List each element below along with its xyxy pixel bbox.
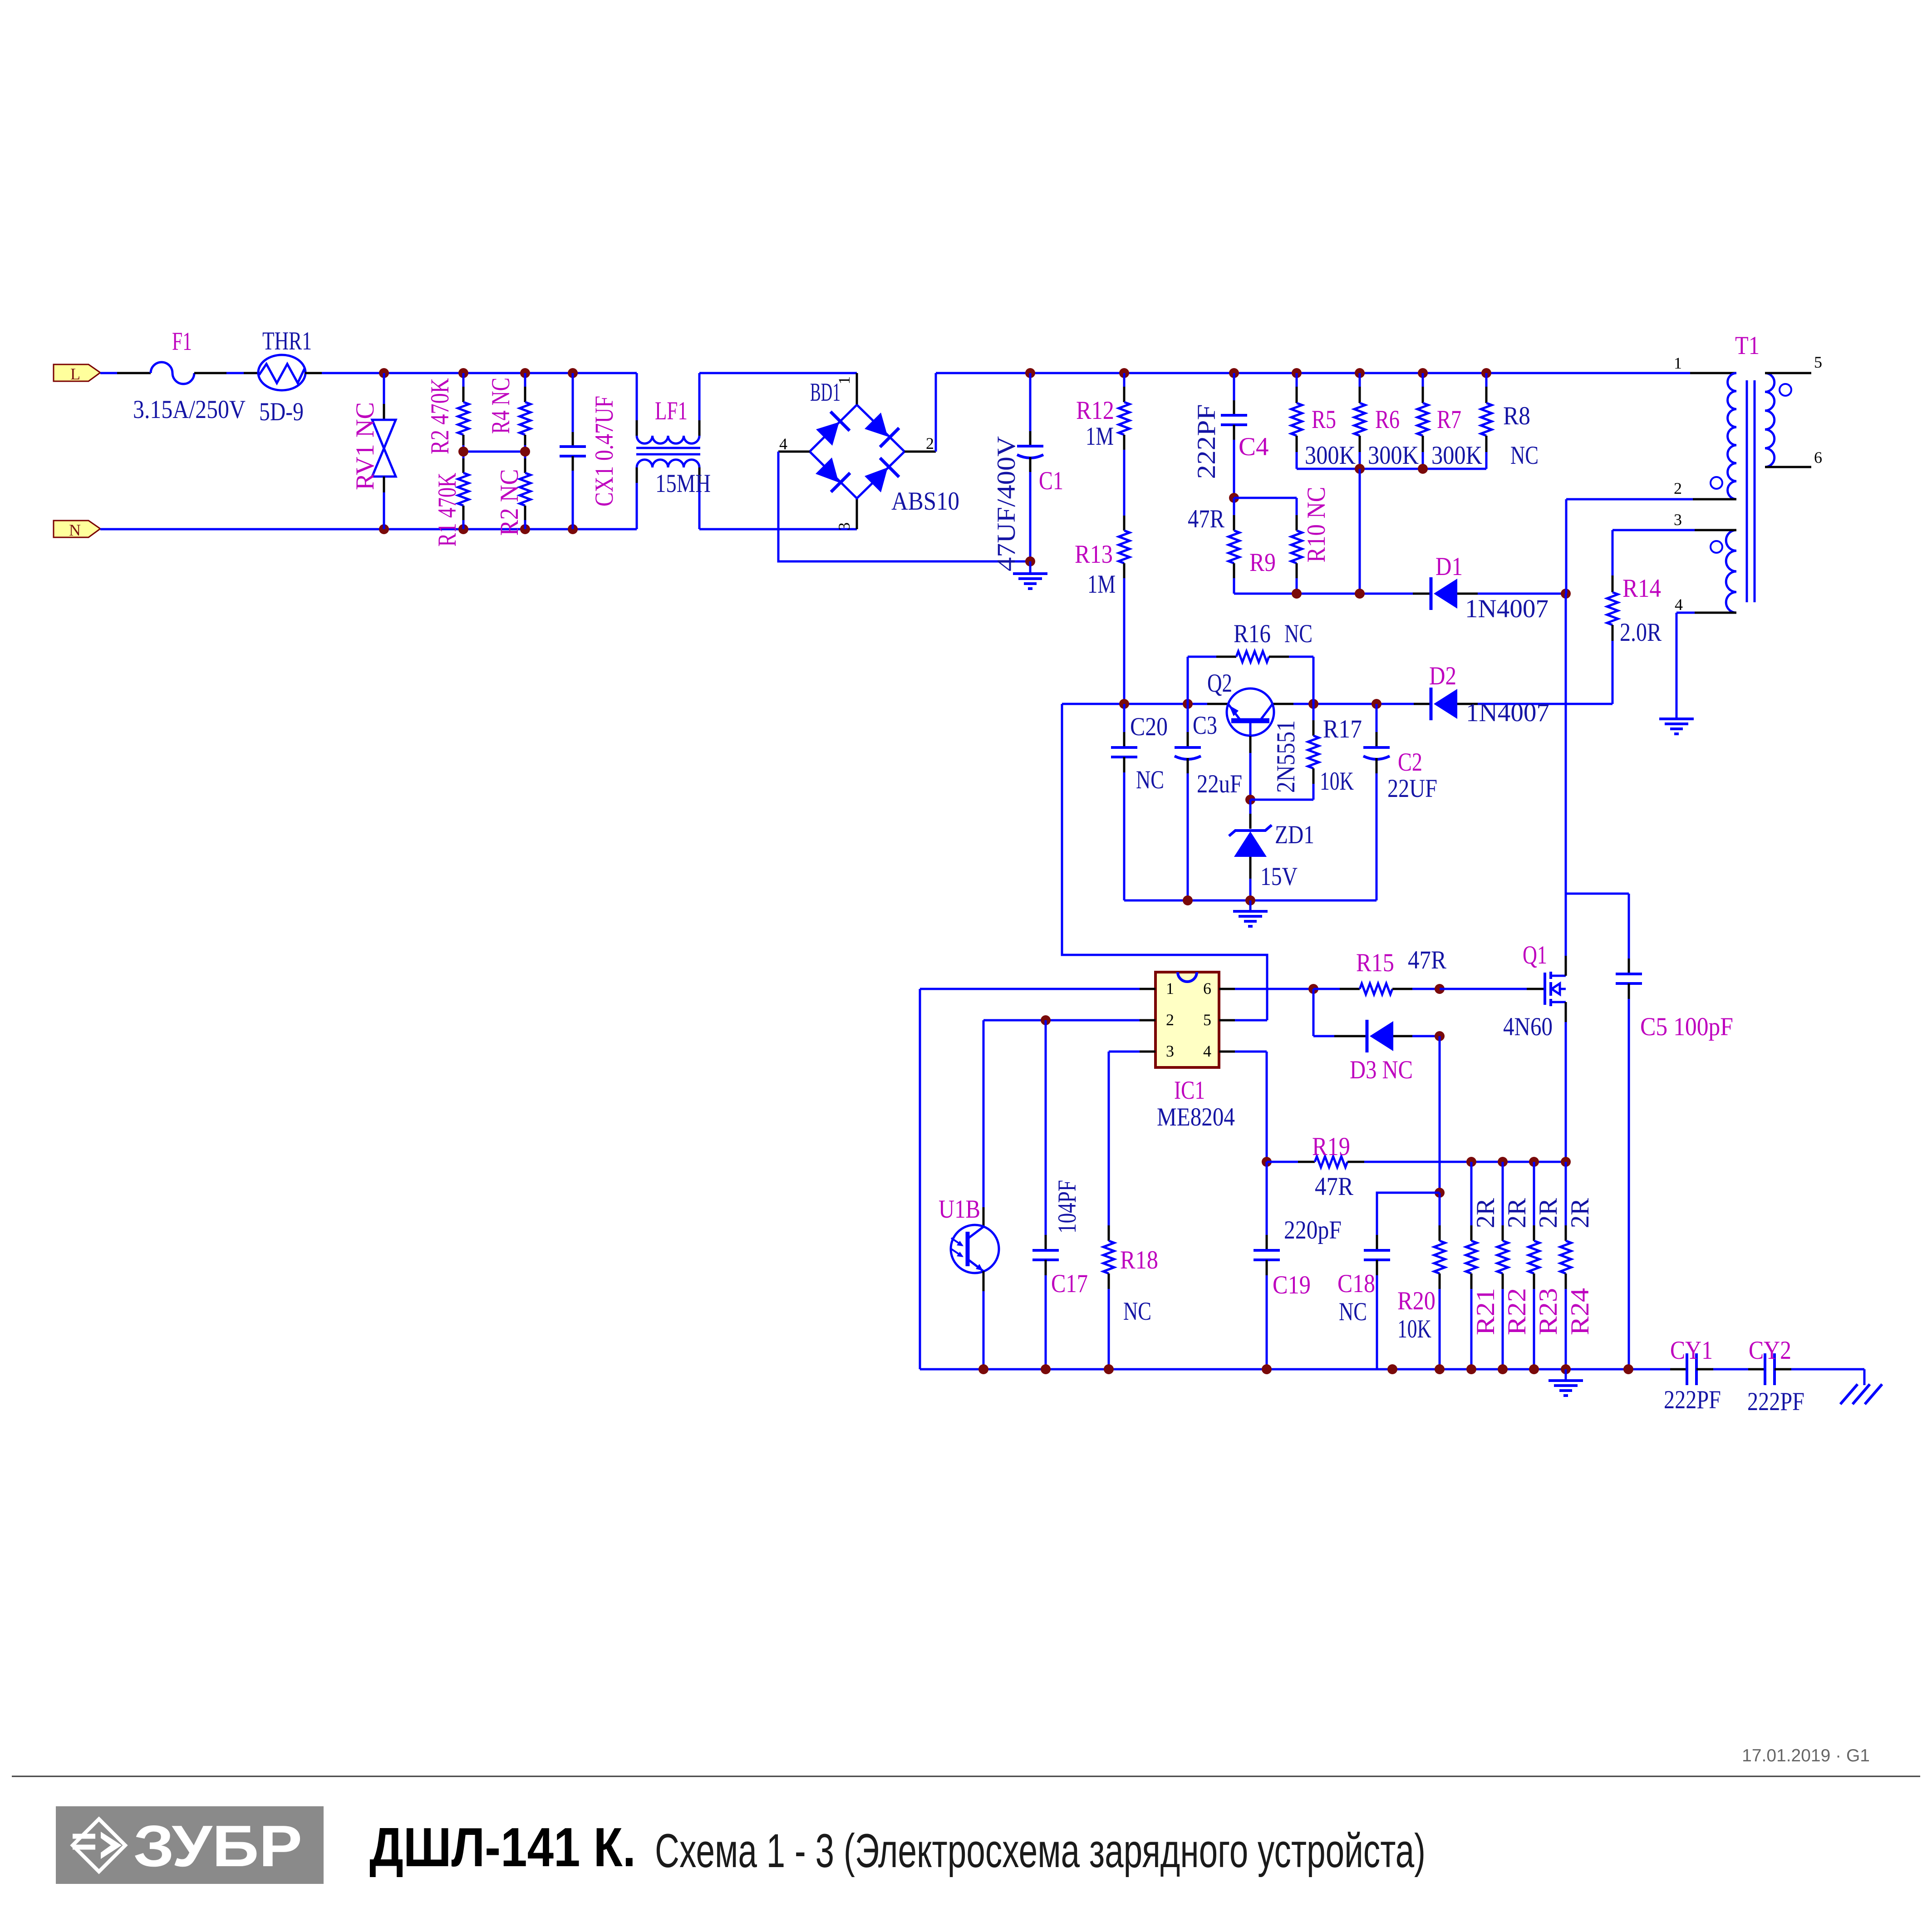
svg-text:5: 5 — [1203, 1011, 1211, 1029]
svg-text:T1: T1 — [1735, 331, 1760, 360]
svg-text:LF1: LF1 — [655, 397, 688, 425]
svg-text:4: 4 — [1203, 1042, 1211, 1060]
svg-text:R2 NC: R2 NC — [495, 469, 524, 536]
svg-text:2: 2 — [1166, 1011, 1174, 1029]
svg-text:R2 470K: R2 470K — [426, 378, 454, 454]
svg-text:1: 1 — [1674, 354, 1682, 372]
svg-text:3.15A/250V: 3.15A/250V — [133, 395, 246, 424]
svg-text:1N4007: 1N4007 — [1465, 595, 1549, 623]
svg-text:5D-9: 5D-9 — [259, 398, 304, 426]
svg-text:R7: R7 — [1437, 405, 1461, 434]
svg-text:C3: C3 — [1193, 711, 1217, 740]
svg-text:D2: D2 — [1429, 662, 1456, 690]
svg-text:R23: R23 — [1534, 1288, 1563, 1335]
svg-text:1N4007: 1N4007 — [1466, 698, 1549, 727]
svg-text:222PF: 222PF — [1747, 1387, 1804, 1416]
svg-text:ЗУБР: ЗУБР — [133, 1814, 302, 1879]
svg-text:1M: 1M — [1087, 570, 1116, 599]
svg-text:R24: R24 — [1566, 1288, 1594, 1335]
svg-text:17.01.2019 · G1: 17.01.2019 · G1 — [1742, 1746, 1870, 1765]
svg-text:NC: NC — [1284, 619, 1313, 648]
svg-text:ME8204: ME8204 — [1157, 1103, 1235, 1131]
svg-text:R22: R22 — [1503, 1288, 1531, 1335]
svg-text:ДШЛ-141 К.: ДШЛ-141 К. — [369, 1816, 636, 1878]
svg-text:10K: 10K — [1320, 767, 1354, 796]
svg-text:3: 3 — [1166, 1042, 1174, 1060]
svg-text:IC1: IC1 — [1174, 1076, 1205, 1105]
svg-text:C17: C17 — [1051, 1269, 1088, 1298]
svg-text:ABS10: ABS10 — [891, 487, 959, 516]
svg-text:ZD1: ZD1 — [1275, 821, 1314, 849]
svg-text:C18: C18 — [1337, 1269, 1375, 1298]
svg-text:222PF: 222PF — [1664, 1386, 1721, 1414]
svg-text:CY1: CY1 — [1670, 1336, 1713, 1365]
svg-text:R1 470K: R1 470K — [433, 473, 462, 547]
svg-text:NC: NC — [1123, 1297, 1151, 1326]
svg-text:R13: R13 — [1075, 540, 1113, 569]
svg-text:2: 2 — [926, 434, 934, 452]
svg-text:D1: D1 — [1435, 552, 1463, 581]
svg-text:R4 NC: R4 NC — [487, 378, 515, 434]
svg-text:L: L — [70, 365, 80, 383]
svg-text:2.0R: 2.0R — [1620, 618, 1662, 647]
svg-text:3: 3 — [1674, 511, 1682, 529]
svg-text:NC: NC — [1510, 441, 1539, 470]
svg-text:300K: 300K — [1368, 441, 1419, 470]
svg-text:RV1 NC: RV1 NC — [351, 402, 379, 490]
svg-text:22uF: 22uF — [1197, 770, 1242, 798]
svg-text:CX1 0.47UF: CX1 0.47UF — [590, 396, 619, 506]
svg-text:300K: 300K — [1305, 441, 1356, 470]
svg-text:15MH: 15MH — [655, 469, 711, 498]
svg-text:2R: 2R — [1503, 1198, 1531, 1229]
svg-text:C1: C1 — [1039, 467, 1063, 495]
svg-text:2: 2 — [1674, 479, 1682, 497]
svg-text:47R: 47R — [1408, 946, 1446, 974]
svg-text:4: 4 — [1675, 595, 1683, 614]
svg-text:C5 100pF: C5 100pF — [1640, 1013, 1733, 1041]
svg-text:2R: 2R — [1566, 1198, 1594, 1229]
svg-text:R15: R15 — [1356, 949, 1394, 977]
svg-text:1: 1 — [1166, 979, 1174, 998]
svg-text:47R: 47R — [1188, 505, 1224, 533]
svg-text:Q2: Q2 — [1207, 669, 1232, 698]
svg-text:NC: NC — [1136, 766, 1164, 794]
svg-text:R18: R18 — [1120, 1246, 1158, 1274]
svg-text:47UF/400V: 47UF/400V — [992, 436, 1021, 571]
svg-text:N: N — [69, 521, 81, 539]
svg-text:C20: C20 — [1130, 713, 1168, 741]
svg-text:222PF: 222PF — [1192, 404, 1221, 479]
svg-text:Q1: Q1 — [1523, 941, 1547, 969]
svg-text:6: 6 — [1203, 979, 1211, 998]
svg-text:R20: R20 — [1397, 1287, 1435, 1315]
svg-text:R17: R17 — [1323, 715, 1362, 743]
svg-text:CY2: CY2 — [1749, 1336, 1791, 1365]
svg-text:C19: C19 — [1273, 1271, 1311, 1299]
svg-text:220pF: 220pF — [1284, 1216, 1342, 1244]
svg-text:R12: R12 — [1076, 396, 1114, 425]
svg-text:R19: R19 — [1312, 1132, 1350, 1161]
svg-text:6: 6 — [1814, 448, 1822, 467]
svg-text:1M: 1M — [1086, 422, 1114, 451]
svg-text:3: 3 — [835, 522, 853, 531]
svg-text:R21: R21 — [1471, 1288, 1500, 1335]
svg-text:1: 1 — [835, 376, 853, 384]
svg-text:2N5551: 2N5551 — [1272, 720, 1300, 793]
svg-text:R5: R5 — [1312, 405, 1336, 434]
svg-text:THR1: THR1 — [262, 327, 312, 355]
svg-text:R8: R8 — [1503, 402, 1530, 430]
svg-text:R16: R16 — [1234, 619, 1271, 648]
svg-text:R9: R9 — [1249, 548, 1276, 577]
svg-text:2R: 2R — [1534, 1198, 1563, 1229]
svg-text:22UF: 22UF — [1387, 774, 1437, 803]
svg-text:D3 NC: D3 NC — [1350, 1056, 1413, 1084]
svg-text:5: 5 — [1814, 353, 1822, 371]
svg-text:300K: 300K — [1431, 441, 1482, 470]
svg-text:10K: 10K — [1397, 1315, 1431, 1343]
svg-text:R14: R14 — [1622, 574, 1661, 603]
svg-text:NC: NC — [1339, 1298, 1367, 1326]
svg-text:C4: C4 — [1239, 433, 1269, 461]
svg-text:Схема 1 - 3 (Электросхема заря: Схема 1 - 3 (Электросхема зарядного устр… — [655, 1824, 1426, 1878]
svg-text:F1: F1 — [172, 327, 192, 356]
svg-text:4N60: 4N60 — [1503, 1013, 1553, 1041]
svg-text:2R: 2R — [1471, 1198, 1500, 1229]
svg-text:104PF: 104PF — [1053, 1180, 1082, 1234]
svg-text:U1B: U1B — [939, 1195, 980, 1224]
svg-text:47R: 47R — [1315, 1172, 1353, 1201]
svg-text:R10 NC: R10 NC — [1302, 487, 1331, 563]
svg-text:R6: R6 — [1375, 405, 1400, 434]
svg-text:C2: C2 — [1398, 748, 1422, 777]
svg-text:4: 4 — [779, 435, 787, 453]
svg-text:15V: 15V — [1260, 862, 1298, 891]
